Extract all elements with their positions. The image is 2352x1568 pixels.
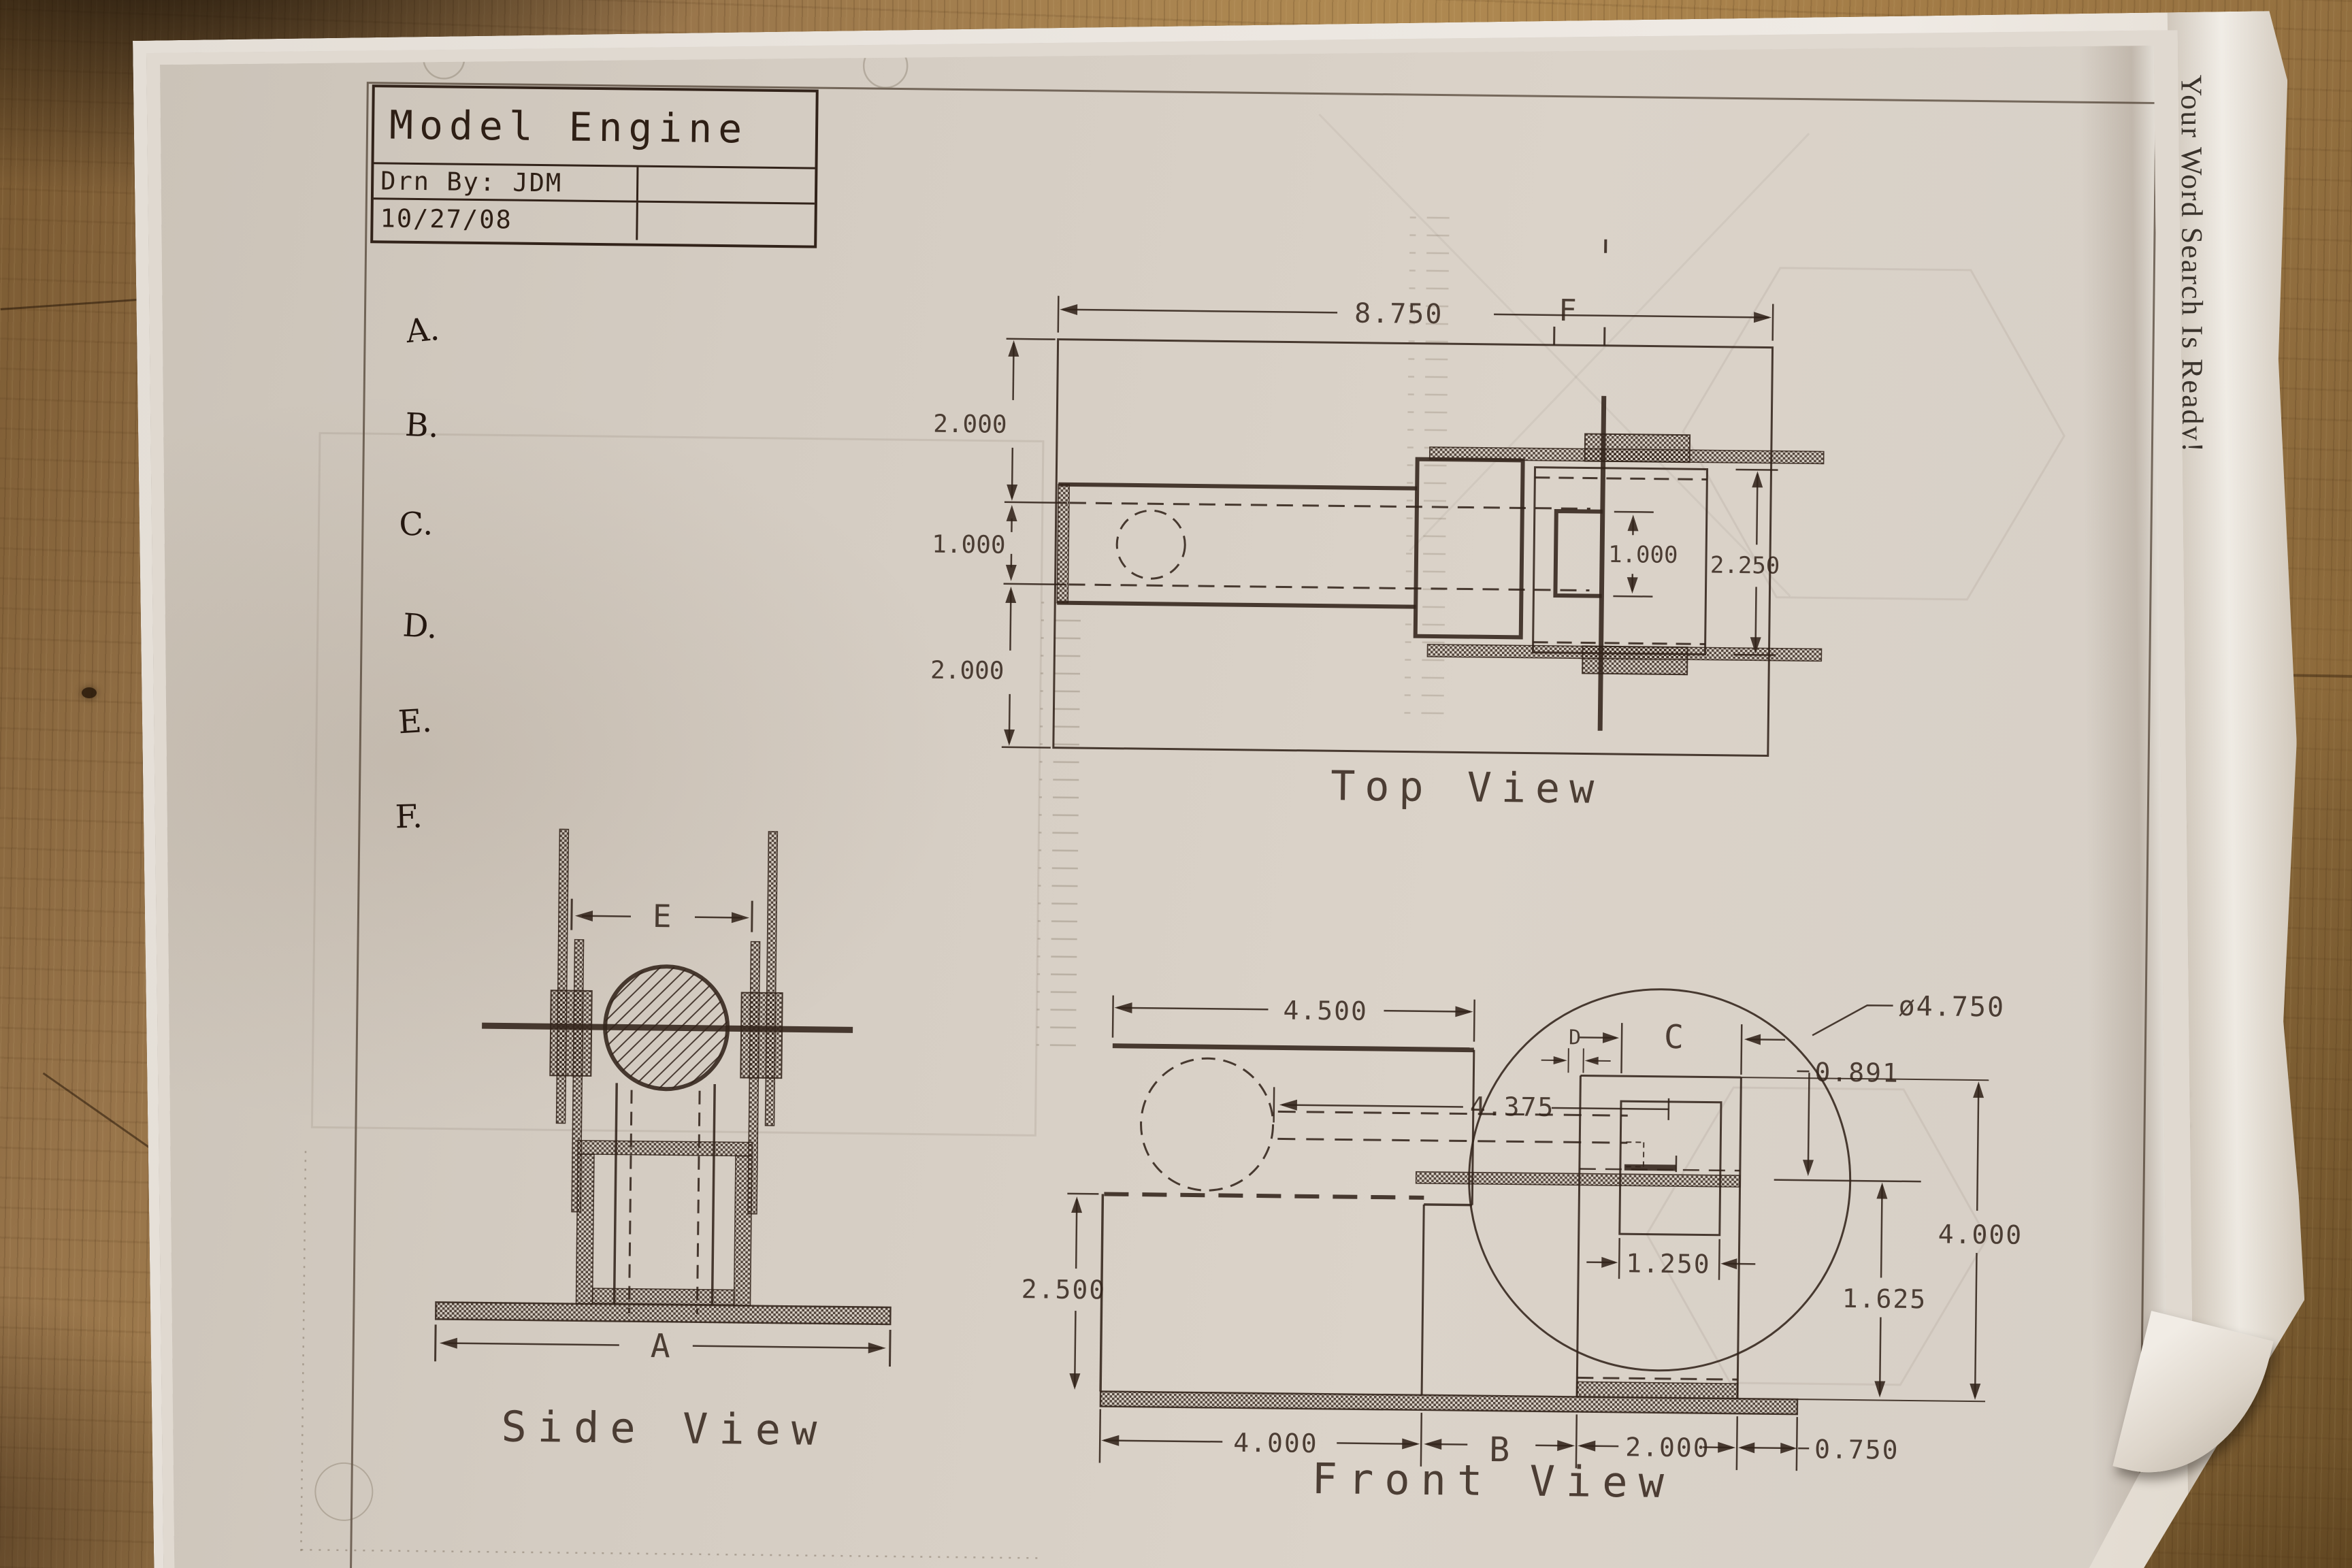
dim-cylinder-length: 4.500	[1283, 995, 1368, 1026]
side-view-drawing: E A Side View	[419, 795, 917, 1488]
drawing-sheet: Model Engine Drn By: JDM 10/27/08 A. B. …	[160, 46, 2170, 1568]
list-item-e: E.	[397, 702, 433, 742]
dim-c-label: C	[1664, 1018, 1684, 1056]
dim-d-label: D	[1569, 1026, 1581, 1049]
crankcase-top-hatch	[578, 1141, 752, 1156]
photo-of-engineering-drawing: Your Word Search Is Ready! Top, Side, an…	[0, 0, 2352, 1568]
mounting-block	[1416, 459, 1523, 638]
dim-case-width: 4.000	[1233, 1428, 1318, 1458]
crankcase-top-hidden	[1104, 1194, 1424, 1198]
base-plate-hatch	[436, 1302, 890, 1324]
crankshaft-line	[482, 1026, 853, 1030]
top-view-drawing: 8.750 F 2.000 1.000 2.000 1.000 2.250 To…	[924, 229, 1829, 818]
title-block-empty-cell	[638, 203, 815, 242]
wood-knot	[82, 687, 97, 698]
flywheel-edge-hatch	[765, 832, 777, 1126]
cylinder-outline	[1058, 485, 1417, 489]
crankpin-notch	[1555, 511, 1602, 596]
dim-lip: 0.750	[1814, 1434, 1899, 1465]
drawing-content: Model Engine Drn By: JDM 10/27/08 A. B. …	[143, 61, 2157, 1568]
dim-notch: 1.000	[1608, 541, 1678, 569]
tower-foot-hatch	[1577, 1382, 1737, 1399]
frame-column-hatch	[734, 1156, 751, 1305]
side-view-caption: Side View	[501, 1401, 828, 1454]
bearing-block-hatch	[1582, 646, 1687, 674]
dim-left-top: 2.000	[933, 410, 1007, 439]
title-block: Model Engine Drn By: JDM 10/27/08	[370, 84, 819, 248]
top-view-arrowheads	[1004, 304, 1771, 755]
bearing-block-hatch	[1585, 434, 1690, 462]
crankshaft-hatch	[1416, 1172, 1740, 1187]
crank-tower-left	[1577, 1075, 1580, 1396]
drawn-by-label: Drn By: JDM	[374, 164, 638, 200]
list-item-d: D.	[402, 606, 438, 646]
dim-shaft-length: 4.375	[1470, 1092, 1555, 1122]
list-item-f: F.	[395, 798, 423, 836]
crank-tower-right	[1737, 1077, 1741, 1399]
dim-flywheel-diameter: ø4.750	[1898, 991, 2005, 1024]
front-view-caption: Front View	[1311, 1454, 1675, 1507]
dim-offset: 0.891	[1814, 1057, 1899, 1088]
cylinder-top	[1113, 1046, 1474, 1050]
dim-a-label: A	[650, 1327, 670, 1365]
frame-bottom-hatch	[593, 1288, 734, 1305]
dim-total-height: 4.000	[1938, 1219, 2023, 1249]
dim-left-mid: 1.000	[932, 531, 1006, 559]
drawing-date: 10/27/08	[373, 199, 638, 240]
dim-shaft-height: 1.625	[1842, 1284, 1927, 1314]
bore-hidden-circle	[1140, 1058, 1273, 1191]
front-view-labels: 4.500 4.375 ø4.750 C D 0.891 1.250 2.500…	[1019, 981, 2025, 1512]
front-view-geometry	[1064, 983, 1990, 1473]
dim-e-label: E	[653, 898, 672, 934]
frame-column-hatch	[576, 1154, 594, 1304]
bearing-block-hatch	[550, 990, 591, 1076]
flywheel-edge-hatch	[557, 829, 569, 1123]
dim-pin-width: 1.250	[1626, 1248, 1711, 1279]
bore-hidden-circle	[1117, 510, 1186, 579]
list-item-a: A.	[404, 310, 441, 350]
dim-left-bottom: 2.000	[930, 657, 1004, 685]
dim-depth: 2.250	[1710, 552, 1780, 580]
dim-f-label: F	[1558, 293, 1577, 328]
shaft-stub	[1624, 1167, 1676, 1168]
list-item-b: B.	[404, 406, 440, 445]
dim-overall-width: 8.750	[1354, 298, 1443, 330]
front-view-drawing: 4.500 4.375 ø4.750 C D 0.891 1.250 2.500…	[1017, 791, 2087, 1568]
title-block-empty-cell	[638, 167, 815, 203]
list-item-c: C.	[398, 505, 433, 544]
dim-case-height: 2.500	[1022, 1274, 1107, 1305]
drawing-title: Model Engine	[374, 87, 815, 169]
bearing-block-hatch	[740, 992, 782, 1078]
